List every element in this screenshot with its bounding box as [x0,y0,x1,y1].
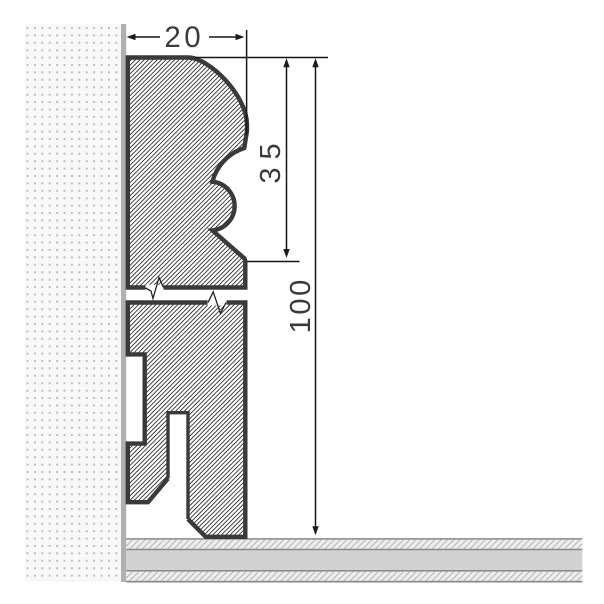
svg-text:100: 100 [285,277,317,333]
svg-text:20: 20 [164,21,204,54]
svg-text:35: 35 [255,135,287,183]
